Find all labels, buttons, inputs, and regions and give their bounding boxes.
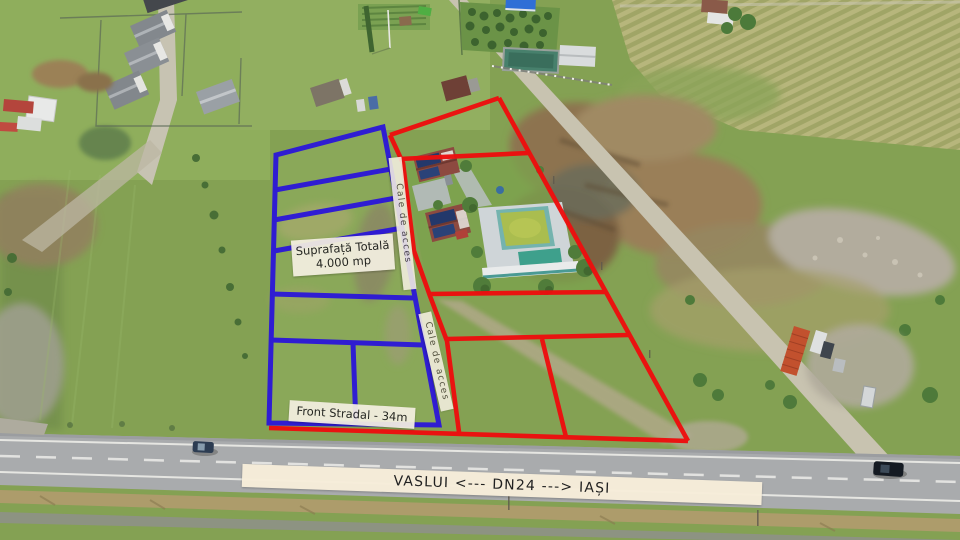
total-area-line2: 4.000 mp [316,253,372,271]
aerial-photo [0,0,960,540]
total-area-label: Suprafață Totală 4.000 mp [291,233,395,276]
car-black [873,461,904,477]
red-divider-house-bottom [429,292,606,294]
car-dark-blue [192,441,214,453]
screenshot-root: Suprafață Totală 4.000 mp Front Stradal … [0,0,960,540]
